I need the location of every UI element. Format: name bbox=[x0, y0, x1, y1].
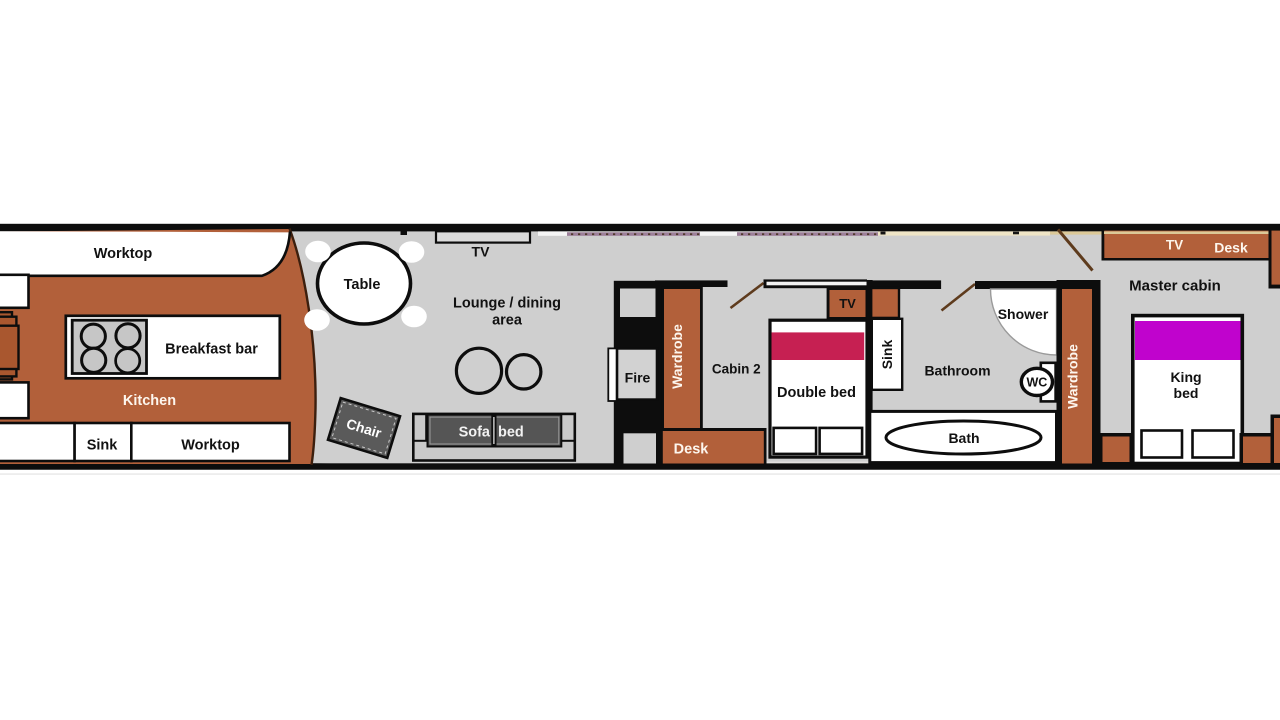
svg-text:Shower: Shower bbox=[998, 306, 1049, 322]
svg-text:bed: bed bbox=[1174, 385, 1199, 401]
svg-text:Worktop: Worktop bbox=[181, 437, 240, 453]
svg-text:Wardrobe: Wardrobe bbox=[669, 324, 685, 389]
svg-text:Fire: Fire bbox=[625, 369, 651, 385]
svg-text:Cabin 2: Cabin 2 bbox=[712, 362, 761, 377]
svg-text:Table: Table bbox=[344, 277, 381, 293]
svg-text:Worktop: Worktop bbox=[94, 246, 153, 262]
svg-text:TV: TV bbox=[1166, 237, 1183, 252]
svg-text:TV: TV bbox=[472, 243, 491, 259]
svg-text:Desk: Desk bbox=[674, 441, 710, 457]
svg-text:Master cabin: Master cabin bbox=[1129, 278, 1221, 295]
svg-text:Desk: Desk bbox=[1214, 240, 1248, 256]
svg-text:Sink: Sink bbox=[87, 437, 119, 453]
svg-text:King: King bbox=[1170, 369, 1201, 385]
svg-text:Wardrobe: Wardrobe bbox=[1065, 344, 1081, 409]
svg-text:Bath: Bath bbox=[948, 430, 979, 446]
svg-text:bed: bed bbox=[498, 424, 524, 440]
svg-text:Sofa: Sofa bbox=[459, 424, 491, 440]
svg-text:Kitchen: Kitchen bbox=[123, 393, 176, 409]
svg-text:Lounge / dining: Lounge / dining bbox=[453, 296, 561, 312]
svg-text:Breakfast bar: Breakfast bar bbox=[165, 342, 258, 358]
svg-text:Bathroom: Bathroom bbox=[924, 363, 990, 379]
svg-text:WC: WC bbox=[1026, 375, 1047, 389]
svg-text:area: area bbox=[492, 313, 523, 329]
svg-text:Double bed: Double bed bbox=[777, 385, 856, 401]
svg-text:TV: TV bbox=[839, 296, 856, 311]
svg-text:Sink: Sink bbox=[879, 340, 895, 370]
